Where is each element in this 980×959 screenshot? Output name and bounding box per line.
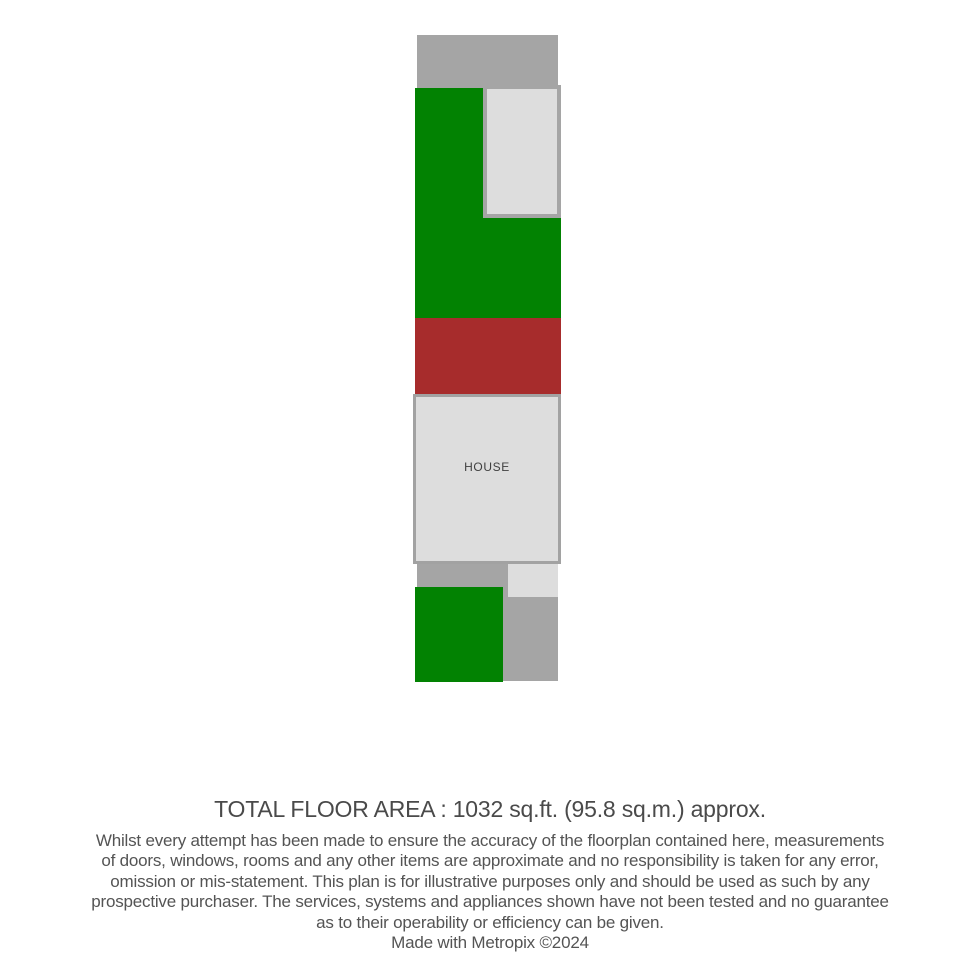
disclaimer-line-4: prospective purchaser. The services, sys… <box>0 892 980 912</box>
disclaimer-line-2: of doors, windows, rooms and any other i… <box>0 851 980 871</box>
disclaimer-line-3: omission or mis-statement. This plan is … <box>0 872 980 892</box>
disclaimer-text: Whilst every attempt has been made to en… <box>0 831 980 933</box>
disclaimer-line-1: Whilst every attempt has been made to en… <box>0 831 980 851</box>
footer: TOTAL FLOOR AREA : 1032 sq.ft. (95.8 sq.… <box>0 795 980 953</box>
metropix-credit: Made with Metropix ©2024 <box>0 933 980 953</box>
patio-inset <box>483 85 561 218</box>
path-top <box>417 35 558 88</box>
garden-lower <box>415 587 503 682</box>
total-floor-area-text: TOTAL FLOOR AREA : 1032 sq.ft. (95.8 sq.… <box>0 795 980 823</box>
floorplan-page: HOUSE TOTAL FLOOR AREA : 1032 sq.ft. (95… <box>0 0 980 959</box>
garage-block <box>415 318 561 394</box>
house-extension <box>508 564 558 597</box>
house: HOUSE <box>413 394 561 564</box>
disclaimer-line-5: as to their operability or efficiency ca… <box>0 913 980 933</box>
house-label: HOUSE <box>464 460 510 474</box>
